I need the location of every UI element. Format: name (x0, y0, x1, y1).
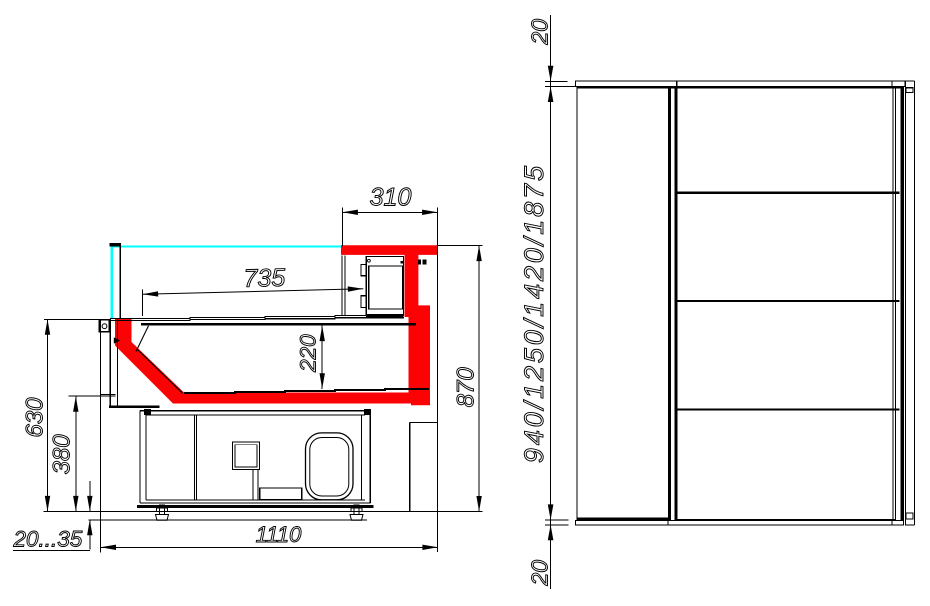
svg-text:220: 220 (295, 334, 320, 373)
svg-text:20...35: 20...35 (12, 527, 82, 552)
svg-text:20: 20 (527, 560, 553, 587)
svg-text:380: 380 (48, 434, 75, 475)
svg-text:630: 630 (22, 397, 49, 438)
svg-text:20: 20 (527, 19, 553, 46)
svg-text:1110: 1110 (256, 522, 302, 547)
svg-text:940/1250/1420/1875: 940/1250/1420/1875 (519, 163, 549, 463)
svg-text:735: 735 (243, 264, 286, 293)
svg-text:310: 310 (370, 184, 412, 212)
svg-text:870: 870 (453, 367, 480, 408)
